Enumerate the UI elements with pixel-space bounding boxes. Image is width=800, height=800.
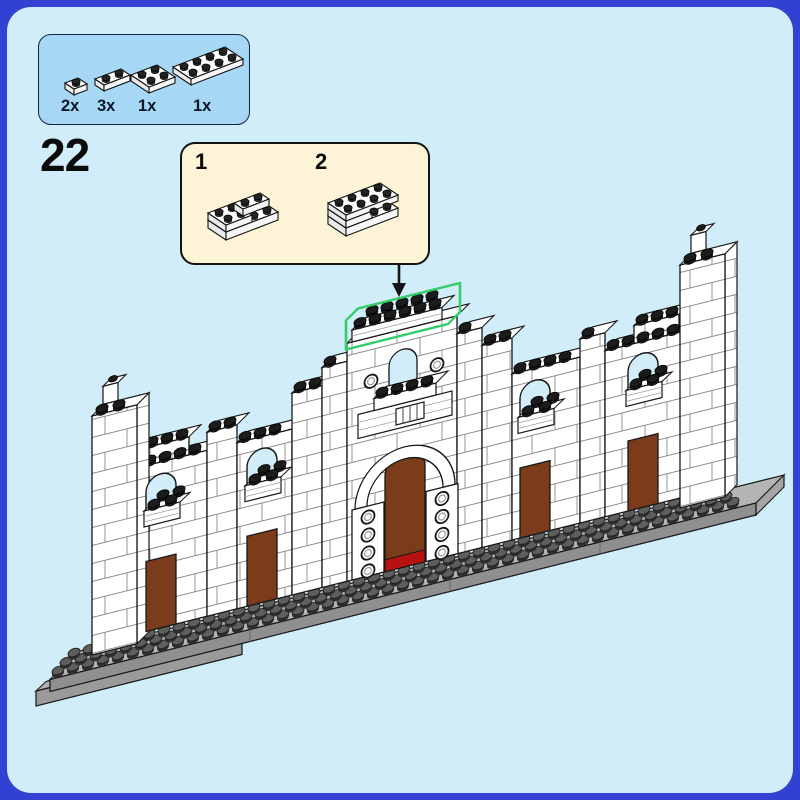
part-qty-2x2: 1x bbox=[138, 97, 156, 116]
part-qty-1x2: 3x bbox=[97, 97, 115, 116]
step-number: 22 bbox=[40, 128, 89, 182]
part-qty-1x1: 2x bbox=[61, 97, 79, 116]
subassembly-step-2: 2 bbox=[315, 149, 327, 175]
arrow-down-icon bbox=[392, 263, 406, 297]
subassembly-icons bbox=[182, 144, 428, 263]
subassembly-box: 1 2 bbox=[180, 142, 430, 265]
model-isometric-group bbox=[36, 202, 784, 706]
parts-callout-box: 2x 3x 1x 1x bbox=[38, 34, 250, 125]
subassembly-step-1: 1 bbox=[195, 149, 207, 175]
instruction-page: { "page": { "step_number": "22" }, "part… bbox=[0, 0, 800, 800]
parts-icons bbox=[39, 35, 249, 97]
part-qty-2x4: 1x bbox=[193, 97, 211, 116]
